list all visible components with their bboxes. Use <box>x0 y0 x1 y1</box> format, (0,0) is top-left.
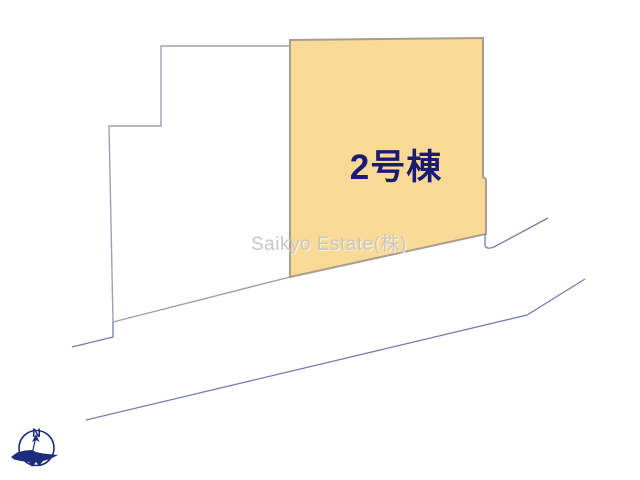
compass-north-label: N <box>32 426 41 440</box>
road-upper-edge-line <box>485 218 548 248</box>
building-label: 2号棟 <box>331 142 461 186</box>
adjacent-parcel-outline <box>109 46 290 322</box>
watermark-text: Saikyo Estate(株) <box>251 229 407 256</box>
compass-bird-shape <box>11 450 58 467</box>
site-plan: 2号棟 Saikyo Estate(株) N <box>0 0 640 480</box>
boundary-spur-line <box>72 322 113 347</box>
compass-icon: N <box>6 422 66 478</box>
